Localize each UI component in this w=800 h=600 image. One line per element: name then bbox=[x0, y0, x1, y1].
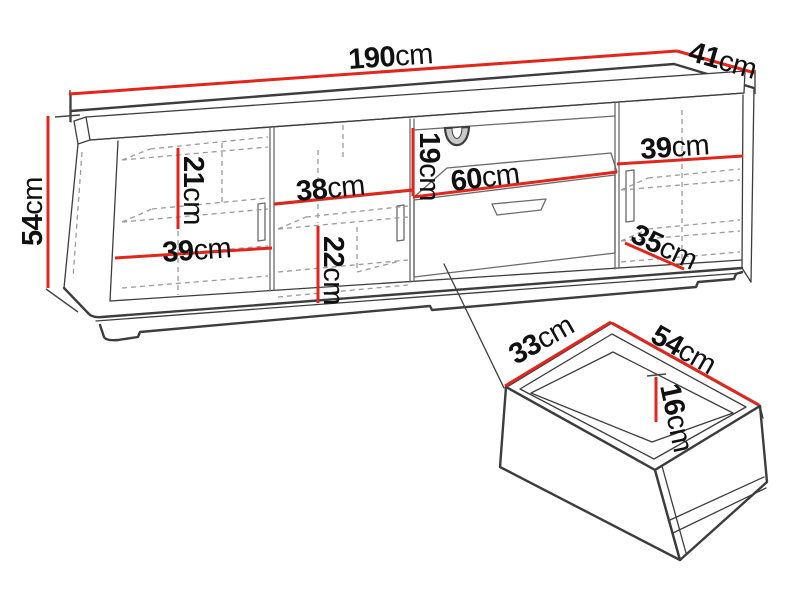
dim-label-overall-height: 54cm bbox=[17, 177, 49, 246]
left-door-handle bbox=[258, 203, 265, 241]
cabinet-drawer-handle bbox=[492, 199, 546, 215]
dim-label-middle-width: 38cm bbox=[295, 170, 367, 208]
right-door-handle bbox=[626, 170, 634, 222]
hidden-right-upper-shelf bbox=[621, 169, 740, 190]
drawer-leader-line bbox=[444, 264, 504, 388]
tick-height-top bbox=[55, 115, 80, 117]
cabinet-structure bbox=[64, 64, 754, 340]
hidden-middle-shelf bbox=[278, 206, 408, 229]
dimension-diagram: 190cm 41cm 54cm 21cm 38cm 39cm 19cm 60cm… bbox=[0, 0, 800, 600]
dim-label-left-width: 39cm bbox=[161, 232, 232, 269]
hidden-left-floor bbox=[122, 276, 268, 288]
dim-label-niche-width: 60cm bbox=[449, 158, 521, 198]
cabinet-bottom-right-corner bbox=[742, 268, 751, 282]
dim-label-overall-width: 190cm bbox=[347, 38, 434, 76]
dim-label-right-depth: 35cm bbox=[626, 218, 702, 276]
drawer-detail bbox=[444, 264, 767, 560]
cable-hole-icon bbox=[445, 127, 469, 145]
cabinet-left-outer-edge bbox=[64, 144, 78, 288]
hidden-left-side bbox=[73, 152, 82, 278]
left-side-panel-inner-edge bbox=[110, 141, 118, 301]
tick-height-bottom bbox=[46, 289, 78, 312]
cabinet-left-bottom-corner bbox=[64, 288, 88, 313]
dim-label-right-width: 39cm bbox=[639, 129, 710, 166]
dim-label-left-upper-height: 21cm bbox=[177, 156, 209, 225]
dim-label-middle-lower-height: 22cm bbox=[317, 236, 349, 305]
cabinet-base-top-line bbox=[96, 273, 742, 321]
cabinet-right-front-edge bbox=[742, 95, 743, 268]
dim-label-niche-height: 19cm bbox=[413, 132, 445, 201]
middle-door-handle bbox=[397, 205, 404, 241]
divider-left bbox=[270, 127, 274, 291]
cabinet-right-outer-edge bbox=[751, 88, 754, 282]
tv-stand-drawing: 190cm 41cm 54cm 21cm 38cm 39cm 19cm 60cm… bbox=[0, 0, 800, 600]
